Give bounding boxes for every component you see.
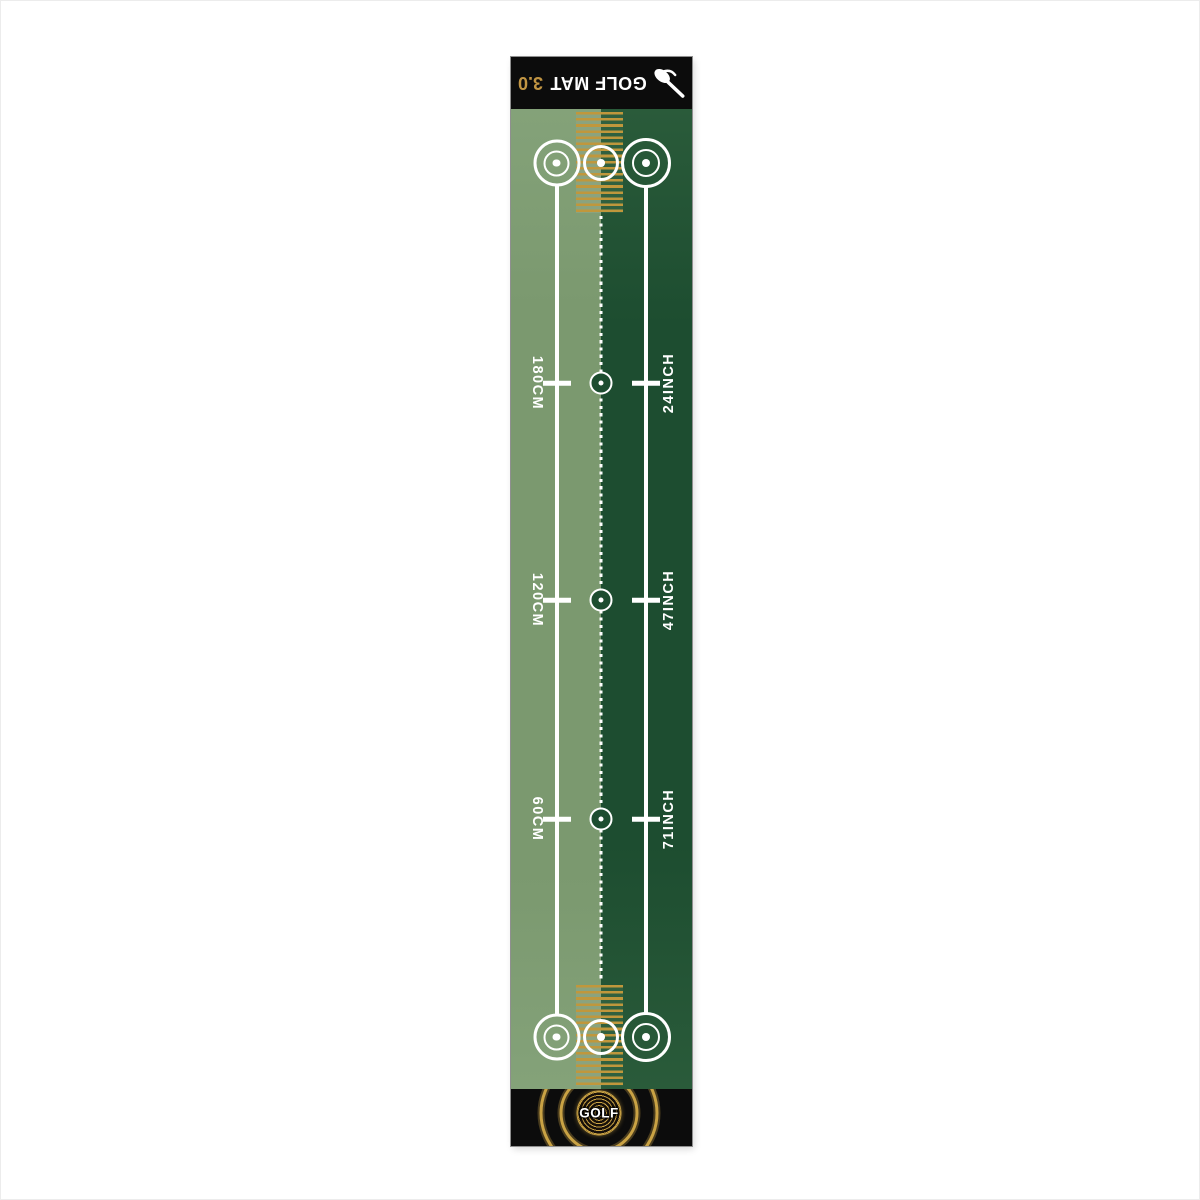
marker-dot bbox=[599, 598, 604, 603]
target-inner-ring bbox=[544, 1024, 570, 1050]
target-inner-ring bbox=[632, 1023, 660, 1051]
target-inner-ring bbox=[544, 150, 570, 176]
logo-text: GOLF bbox=[579, 1106, 619, 1121]
center-distance-marker bbox=[590, 589, 613, 612]
mat-version: 3.0 bbox=[518, 73, 543, 94]
target-inner-ring bbox=[632, 149, 660, 177]
mat-header-content: GOLF MAT 3.0 bbox=[518, 68, 686, 98]
putter-icon bbox=[651, 68, 685, 98]
target-circle-top-left bbox=[533, 140, 580, 187]
mat-title: GOLF MAT bbox=[550, 73, 647, 94]
target-circle-top-center bbox=[583, 145, 619, 181]
mat-footer-band: GOLF bbox=[511, 1089, 692, 1146]
center-distance-marker bbox=[590, 372, 613, 395]
target-dot bbox=[642, 1033, 651, 1042]
distance-label-inch: 71INCH bbox=[661, 789, 677, 850]
distance-label-inch: 24INCH bbox=[661, 353, 677, 414]
right-line-tick bbox=[632, 817, 660, 822]
putting-surface: 180CM 24INCH 120CM 47INCH 60CM 71INCH bbox=[511, 109, 692, 1089]
mat-header-band: GOLF MAT 3.0 bbox=[511, 57, 692, 109]
marker-dot bbox=[599, 817, 604, 822]
target-dot bbox=[642, 159, 651, 168]
left-line-tick bbox=[543, 598, 571, 603]
target-dot bbox=[597, 1033, 605, 1041]
target-circle-top-right bbox=[621, 138, 671, 188]
golf-ball-logo: GOLF bbox=[577, 1091, 622, 1136]
target-dot bbox=[553, 1033, 561, 1041]
left-line-tick bbox=[543, 817, 571, 822]
target-circle-bottom-center bbox=[583, 1019, 619, 1055]
left-line-tick bbox=[543, 381, 571, 386]
product-image-canvas: GOLF MAT 3.0 bbox=[0, 0, 1200, 1200]
target-circle-bottom-right bbox=[621, 1012, 671, 1062]
golf-putting-mat: GOLF MAT 3.0 bbox=[511, 57, 692, 1146]
center-distance-marker bbox=[590, 808, 613, 831]
target-dot bbox=[553, 159, 561, 167]
right-line-tick bbox=[632, 598, 660, 603]
target-circle-bottom-left bbox=[533, 1014, 580, 1061]
target-dot bbox=[597, 159, 605, 167]
right-line-tick bbox=[632, 381, 660, 386]
distance-label-inch: 47INCH bbox=[661, 570, 677, 631]
marker-dot bbox=[599, 381, 604, 386]
